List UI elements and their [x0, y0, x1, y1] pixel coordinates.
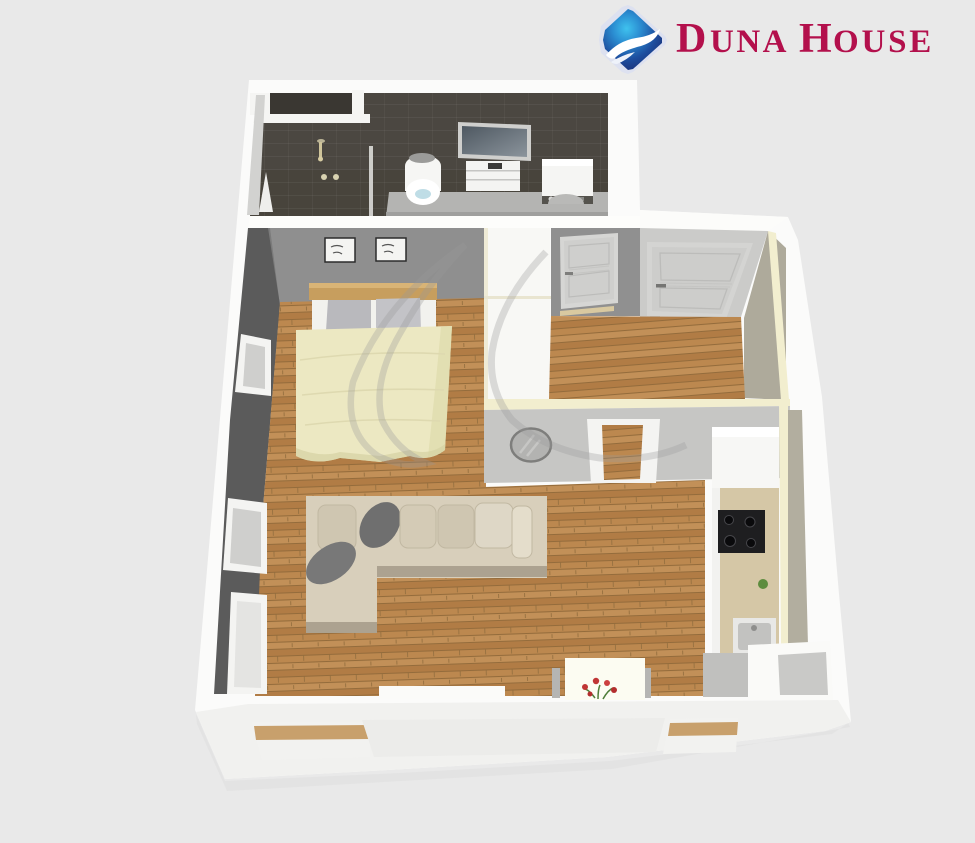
svg-text:OUSE: OUSE — [833, 24, 934, 60]
svg-text:UNA: UNA — [710, 24, 789, 60]
svg-text:H: H — [799, 16, 832, 62]
svg-text:D: D — [676, 16, 706, 62]
